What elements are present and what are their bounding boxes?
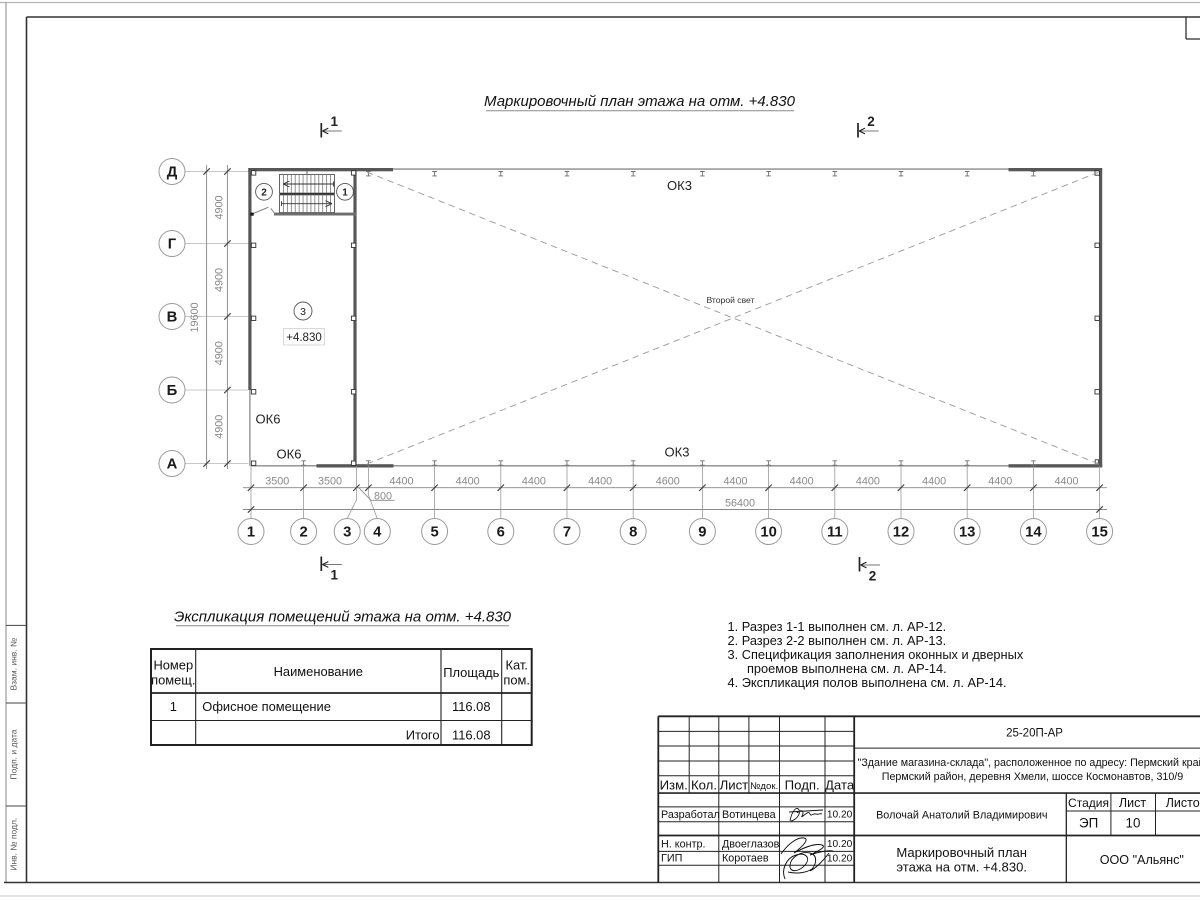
svg-text:ЭП: ЭП: [1079, 816, 1098, 831]
svg-text:3. Спецификация заполнения око: 3. Спецификация заполнения оконных и две…: [728, 647, 1024, 662]
svg-text:В: В: [167, 310, 178, 326]
svg-text:10.20: 10.20: [827, 854, 853, 865]
svg-text:Лист: Лист: [1119, 796, 1146, 810]
svg-text:4600: 4600: [656, 476, 680, 488]
svg-text:№док.: №док.: [750, 781, 778, 792]
svg-text:Коротаев: Коротаев: [722, 853, 769, 865]
svg-text:2: 2: [867, 114, 875, 129]
svg-text:1: 1: [170, 699, 177, 714]
svg-text:6: 6: [497, 525, 505, 541]
svg-text:4900: 4900: [214, 341, 226, 365]
svg-text:5: 5: [430, 525, 438, 541]
svg-text:116.08: 116.08: [452, 699, 490, 714]
svg-text:Д: Д: [167, 165, 178, 181]
svg-text:8: 8: [629, 525, 637, 541]
svg-text:Пермский район, деревня Хмели,: Пермский район, деревня Хмели, шоссе Кос…: [882, 771, 1183, 783]
svg-text:ОК6: ОК6: [277, 447, 302, 462]
svg-text:Н. контр.: Н. контр.: [661, 839, 706, 851]
svg-text:ГИП: ГИП: [661, 853, 682, 865]
svg-text:Лист: Лист: [720, 778, 749, 793]
svg-text:4400: 4400: [988, 476, 1012, 488]
svg-text:4. Экспликация полов выполнена: 4. Экспликация полов выполнена см. л. АР…: [728, 675, 1007, 690]
svg-text:Экспликация помещений этажа на: Экспликация помещений этажа на отм. +4.8…: [174, 609, 512, 626]
svg-text:11: 11: [827, 525, 843, 541]
svg-text:2: 2: [299, 525, 307, 541]
svg-text:4400: 4400: [723, 476, 747, 488]
svg-text:Номер: Номер: [153, 658, 193, 673]
svg-text:"Здание магазина-склада", расп: "Здание магазина-склада", расположенное …: [858, 757, 1200, 769]
svg-text:Инв. № подл.: Инв. № подл.: [9, 818, 19, 871]
svg-text:Волочай Анатолий Владимирович: Волочай Анатолий Владимирович: [876, 810, 1047, 822]
svg-text:3: 3: [300, 306, 306, 318]
svg-text:Изм.: Изм.: [660, 778, 688, 793]
svg-text:4400: 4400: [456, 476, 480, 488]
svg-text:Итого: Итого: [406, 727, 440, 742]
svg-text:4400: 4400: [790, 476, 814, 488]
svg-text:Подп. и дата: Подп. и дата: [9, 729, 19, 779]
svg-text:Взам. инв. №: Взам. инв. №: [9, 638, 19, 691]
svg-text:Маркировочный план: Маркировочный план: [896, 845, 1027, 860]
svg-text:3500: 3500: [265, 476, 289, 488]
svg-text:Маркировочный план этажа на от: Маркировочный план этажа на отм. +4.830: [484, 93, 796, 110]
svg-text:Наименование: Наименование: [274, 664, 363, 679]
svg-text:13: 13: [959, 525, 975, 541]
svg-text:Подп.: Подп.: [785, 778, 820, 793]
svg-text:4400: 4400: [856, 476, 880, 488]
svg-text:Разработал: Разработал: [661, 809, 720, 821]
svg-text:9: 9: [698, 525, 706, 541]
svg-text:А: А: [167, 457, 178, 473]
svg-text:ОК6: ОК6: [256, 412, 281, 427]
svg-text:Листов: Листов: [1166, 796, 1200, 810]
svg-text:7: 7: [563, 525, 571, 541]
svg-text:56400: 56400: [725, 497, 755, 509]
svg-text:10: 10: [1126, 816, 1141, 831]
svg-text:помещ.: помещ.: [151, 673, 195, 688]
svg-text:Второй свет: Второй свет: [706, 295, 754, 305]
svg-text:ОК3: ОК3: [667, 178, 692, 193]
svg-text:1: 1: [331, 568, 339, 583]
svg-text:4400: 4400: [922, 476, 946, 488]
svg-text:3500: 3500: [318, 476, 342, 488]
svg-text:1: 1: [342, 188, 348, 199]
svg-text:4900: 4900: [214, 268, 226, 292]
svg-text:4900: 4900: [214, 195, 226, 219]
svg-text:4400: 4400: [522, 476, 546, 488]
svg-text:116.08: 116.08: [452, 727, 490, 742]
svg-text:Площадь: Площадь: [443, 665, 499, 680]
svg-text:ООО "Альянс": ООО "Альянс": [1100, 853, 1184, 867]
svg-text:25-20П-АР: 25-20П-АР: [1006, 728, 1063, 740]
svg-text:10.20: 10.20: [827, 810, 853, 821]
svg-text:4400: 4400: [588, 476, 612, 488]
svg-text:1: 1: [247, 525, 255, 541]
svg-text:Двоеглазов: Двоеглазов: [722, 839, 780, 851]
svg-text:пом.: пом.: [503, 673, 530, 688]
svg-text:Офисное помещение: Офисное помещение: [202, 699, 331, 714]
svg-text:10: 10: [760, 525, 776, 541]
svg-text:1. Разрез 1-1 выполнен см. л.: 1. Разрез 1-1 выполнен см. л. АР-12.: [728, 619, 947, 634]
svg-text:2. Разрез 2-2 выполнен см. л.: 2. Разрез 2-2 выполнен см. л. АР-13.: [728, 633, 947, 648]
svg-text:15: 15: [1091, 525, 1107, 541]
svg-text:1: 1: [331, 114, 339, 129]
svg-text:+4.830: +4.830: [286, 332, 322, 344]
svg-text:800: 800: [374, 490, 392, 502]
svg-text:3: 3: [343, 525, 351, 541]
svg-text:19600: 19600: [189, 302, 201, 332]
svg-text:4900: 4900: [214, 415, 226, 439]
svg-text:2: 2: [869, 569, 877, 584]
svg-text:4400: 4400: [1054, 476, 1078, 488]
svg-text:Кат.: Кат.: [505, 658, 527, 673]
svg-text:Вотинцева: Вотинцева: [722, 809, 776, 821]
svg-text:14: 14: [1025, 525, 1042, 541]
svg-text:12: 12: [893, 525, 909, 541]
svg-text:Г: Г: [168, 237, 177, 253]
svg-text:Кол.: Кол.: [691, 778, 717, 793]
svg-text:10.20: 10.20: [827, 839, 853, 850]
svg-text:этажа на отм. +4.830.: этажа на отм. +4.830.: [896, 860, 1027, 875]
svg-text:4400: 4400: [389, 476, 413, 488]
svg-text:Стадия: Стадия: [1068, 796, 1109, 810]
svg-text:4: 4: [373, 525, 382, 541]
svg-text:2: 2: [261, 188, 267, 199]
svg-text:ОК3: ОК3: [665, 445, 690, 460]
svg-text:Б: Б: [167, 383, 178, 399]
svg-text:проемов выполнена см. л. АР-14: проемов выполнена см. л. АР-14.: [747, 661, 947, 676]
svg-text:Дата: Дата: [825, 778, 855, 793]
